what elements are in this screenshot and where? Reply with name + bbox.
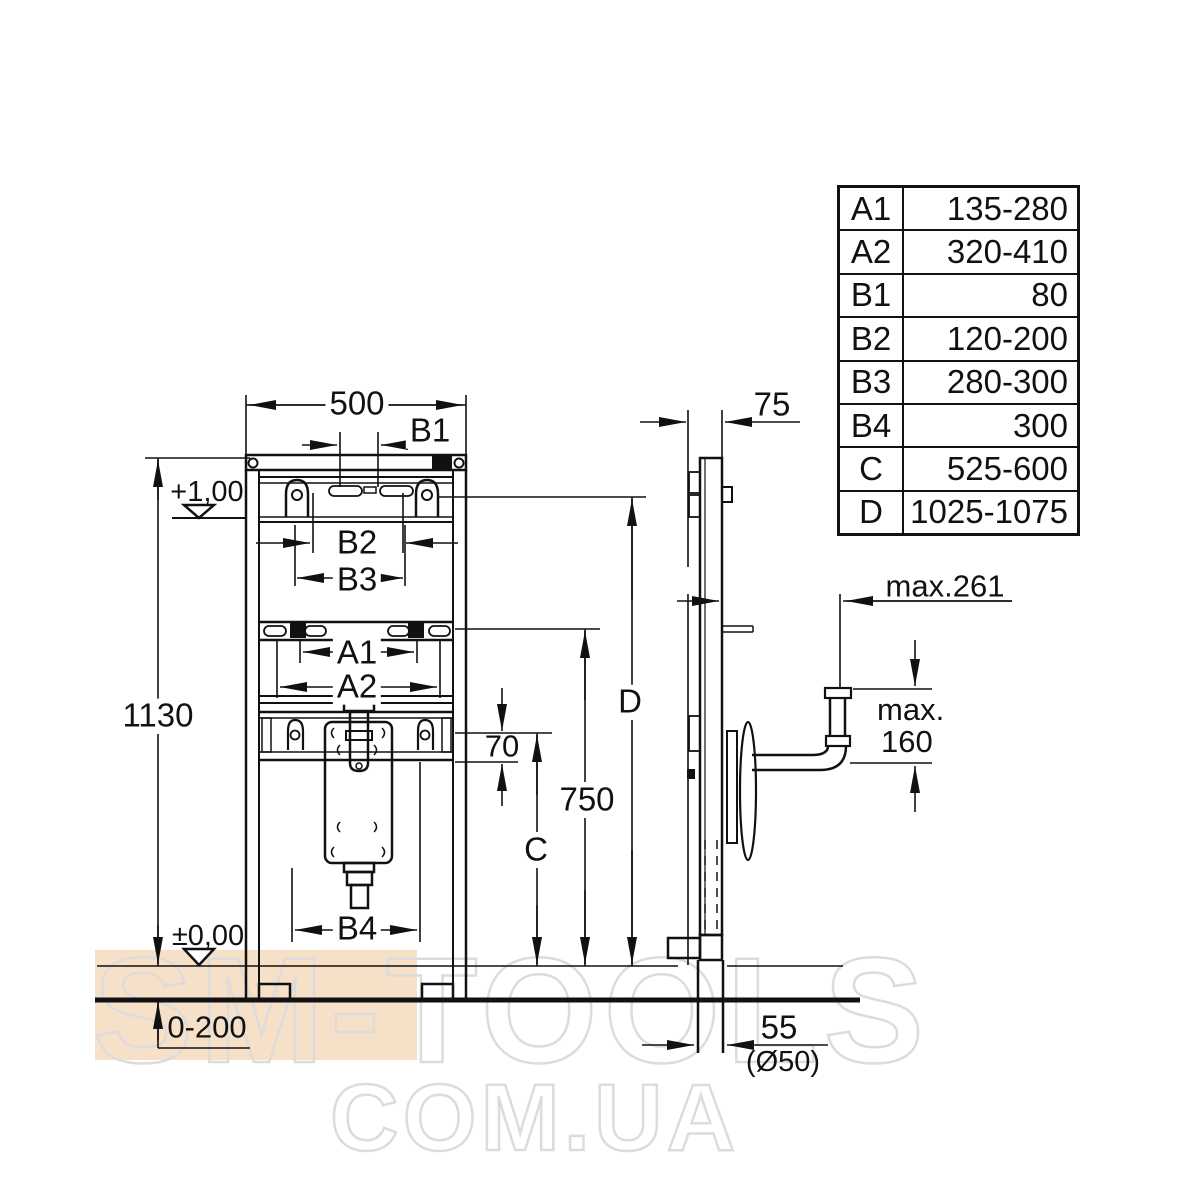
table-row: B2 120-200 <box>840 318 1077 361</box>
dim-label-max261: max.261 <box>886 571 1005 604</box>
rail-slot <box>429 626 450 636</box>
table-row: B4 300 <box>840 405 1077 448</box>
installation-drawing: SM-TOOLS COM.UA <box>0 0 1200 1200</box>
slot <box>380 486 413 496</box>
level-label-plus100: +1,00 <box>170 477 243 507</box>
pipe-coupling <box>825 688 851 698</box>
rail-slot <box>388 626 409 636</box>
watermark-text-domain: COM.UA <box>330 1065 739 1171</box>
fixing-bolt <box>408 623 424 638</box>
dim-label-a1: A1 <box>333 636 381 671</box>
dim-label-max-word: max. <box>877 694 944 727</box>
dim-label-b3: B3 <box>333 563 381 598</box>
screw-tab <box>722 487 732 502</box>
level-label-zero: ±0,00 <box>172 921 244 951</box>
hook-bracket <box>416 480 438 517</box>
table-value-cell: 280-300 <box>904 363 1077 401</box>
slot-dash <box>364 487 376 493</box>
dim-label-750: 750 <box>555 783 618 818</box>
table-row: B1 80 <box>840 275 1077 318</box>
dim-label-160: 160 <box>881 726 933 759</box>
dim-label-c: C <box>520 833 552 868</box>
fixing-bolt <box>290 623 306 638</box>
dim-label-b1: B1 <box>406 414 454 449</box>
pipe-coupling <box>826 736 850 746</box>
top-connector-block <box>432 456 452 469</box>
dim-label-dia50: (Ø50) <box>746 1047 820 1077</box>
dim-label-500: 500 <box>325 387 388 422</box>
table-value-cell: 300 <box>904 407 1077 445</box>
table-key-cell: B2 <box>840 318 904 359</box>
frame-profile <box>700 458 722 935</box>
table-key-cell: B1 <box>840 275 904 316</box>
table-key-cell: D <box>840 492 904 533</box>
table-row: B3 280-300 <box>840 362 1077 405</box>
table-key-cell: B4 <box>840 405 904 446</box>
table-value-cell: 320-410 <box>904 233 1077 271</box>
rail-slot <box>264 626 286 636</box>
wall-bracket-top <box>689 472 700 493</box>
drain-flange <box>344 863 374 872</box>
table-row: A1 135-280 <box>840 188 1077 231</box>
dim-label-1130: 1130 <box>119 699 198 734</box>
plate-side <box>727 731 737 843</box>
table-value-cell: 135-280 <box>904 190 1077 228</box>
dim-label-d: D <box>614 685 646 720</box>
slot <box>329 486 362 496</box>
corner-pin-right <box>455 459 464 468</box>
dim-label-b2: B2 <box>333 526 381 561</box>
dim-label-a2: A2 <box>333 670 381 705</box>
hook-bracket <box>286 480 308 517</box>
rail-slot <box>305 626 326 636</box>
wall-flange-disc <box>740 722 756 860</box>
table-row: A2 320-410 <box>840 231 1077 274</box>
dim-label-55: 55 <box>761 1011 798 1046</box>
table-key-cell: B3 <box>840 362 904 403</box>
table-value-cell: 120-200 <box>904 320 1077 358</box>
table-value-cell: 1025-1075 <box>904 493 1077 531</box>
drain-stub <box>351 885 368 908</box>
table-value-cell: 525-600 <box>904 450 1077 488</box>
table-row: D 1025-1075 <box>840 492 1077 533</box>
dim-label-75: 75 <box>754 388 791 423</box>
table-value-cell: 80 <box>904 276 1077 314</box>
table-key-cell: A1 <box>840 188 904 229</box>
wall-bracket-bottom <box>689 716 700 751</box>
table-key-cell: A2 <box>840 231 904 272</box>
inlet-elbow <box>752 746 828 755</box>
dim-label-0-200: 0-200 <box>167 1012 246 1045</box>
corner-pin-left <box>249 459 258 468</box>
dim-label-b4: B4 <box>333 912 381 947</box>
dim-label-70: 70 <box>485 731 519 764</box>
table-key-cell: C <box>840 448 904 489</box>
mounting-plate <box>325 722 392 863</box>
drain-body <box>347 872 372 885</box>
table-row: C 525-600 <box>840 448 1077 491</box>
dimension-table: A1 135-280 A2 320-410 B1 80 B2 120-200 B… <box>837 185 1080 536</box>
